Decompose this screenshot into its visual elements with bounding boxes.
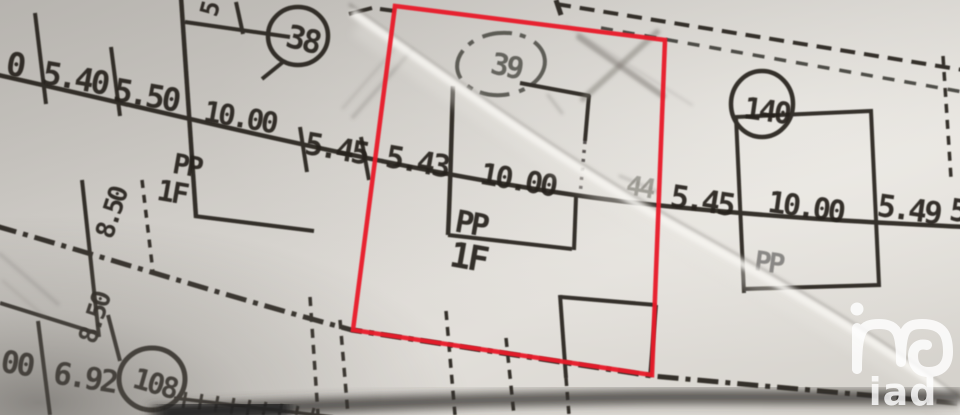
plan-canvas: 0 5.40 5.50 10.00 5.45 5.43 10.00 44 5.4… [0,0,960,415]
shadow-bottom-left [0,0,960,415]
cadastral-plan-photo: 0 5.40 5.50 10.00 5.45 5.43 10.00 44 5.4… [0,0,960,415]
photo-shadows [0,0,960,415]
bottom-edge-shadow [160,408,290,414]
logo-wordmark: iad [869,370,938,414]
logo-i-dot [851,303,864,316]
